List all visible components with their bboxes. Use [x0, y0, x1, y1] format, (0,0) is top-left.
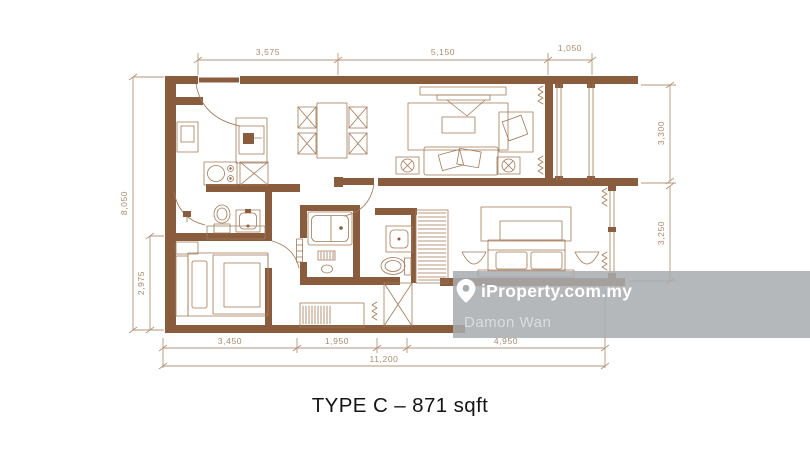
master-pillow-right	[531, 252, 562, 269]
stove	[204, 162, 237, 185]
bathtub	[308, 212, 352, 245]
dim-top-3: 1,050	[558, 43, 582, 53]
dimensions-top: 3,575 5,150 1,050	[194, 43, 596, 75]
ac-ledge	[300, 283, 412, 327]
dim-left-2: 2,975	[136, 271, 146, 295]
dim-top-2: 5,150	[431, 47, 455, 57]
sink-basin	[243, 133, 254, 144]
floor-drain	[322, 265, 333, 273]
watermark-brand: iProperty.com.my	[481, 281, 632, 301]
dining-table	[317, 103, 347, 158]
ac-unit	[300, 303, 364, 327]
nightstand-2	[176, 242, 198, 254]
tv-console	[420, 87, 506, 95]
bedroom2-door-arc	[272, 241, 299, 268]
shower-grate	[318, 251, 335, 260]
dim-total-width: 11,200	[370, 354, 399, 364]
master-door-leaf	[343, 178, 374, 185]
floor-plan-canvas: 3,575 5,150 1,050 8,050 2,975 3,300 3,25…	[0, 0, 810, 450]
master-bedroom	[462, 207, 599, 277]
bed-2	[188, 253, 268, 316]
dim-left-1: 8,050	[119, 191, 129, 215]
dim-top-1: 3,575	[256, 47, 280, 57]
dim-right-1: 3,300	[656, 121, 666, 145]
armchair	[499, 112, 533, 152]
sofa	[424, 147, 498, 175]
kitchen	[177, 118, 268, 185]
entrance-door-leaf	[199, 78, 239, 83]
bath-louver-door	[297, 239, 303, 262]
dim-bottom-2: 1,950	[325, 336, 349, 346]
dining-chairs	[298, 107, 367, 154]
washing-machine	[177, 122, 198, 152]
bedroom-2	[176, 242, 268, 316]
dim-bottom-1: 3,450	[218, 336, 242, 346]
bathroom2-door-arc	[174, 192, 205, 225]
wardrobe	[416, 210, 448, 283]
side-table-left	[396, 157, 419, 174]
master-duvet	[481, 207, 571, 241]
rug	[408, 103, 508, 150]
headboard-2	[176, 256, 188, 316]
foyer-cabinet	[176, 97, 203, 105]
bedside-lamp-left	[462, 252, 486, 264]
balcony-sliding-doors	[557, 84, 593, 180]
master-pillow-left	[496, 252, 527, 269]
side-table-right	[497, 157, 520, 174]
tissue-holder	[183, 211, 191, 217]
dining-area	[298, 103, 367, 158]
tv	[437, 95, 490, 100]
floorplan-page: 3,575 5,150 1,050 8,050 2,975 3,300 3,25…	[0, 0, 810, 450]
pillow-2	[192, 261, 207, 308]
master-bed	[488, 240, 565, 271]
dimensions-left: 8,050 2,975	[119, 74, 164, 333]
bedside-lamp-right	[575, 252, 599, 264]
plan-title: TYPE C – 871 sqft	[312, 394, 489, 417]
watermark: iProperty.com.my Damon Wan	[453, 271, 810, 338]
watermark-agent: Damon Wan	[464, 314, 551, 331]
coffee-table	[442, 117, 475, 133]
dim-right-2: 3,250	[656, 221, 666, 245]
living-room	[396, 87, 533, 175]
